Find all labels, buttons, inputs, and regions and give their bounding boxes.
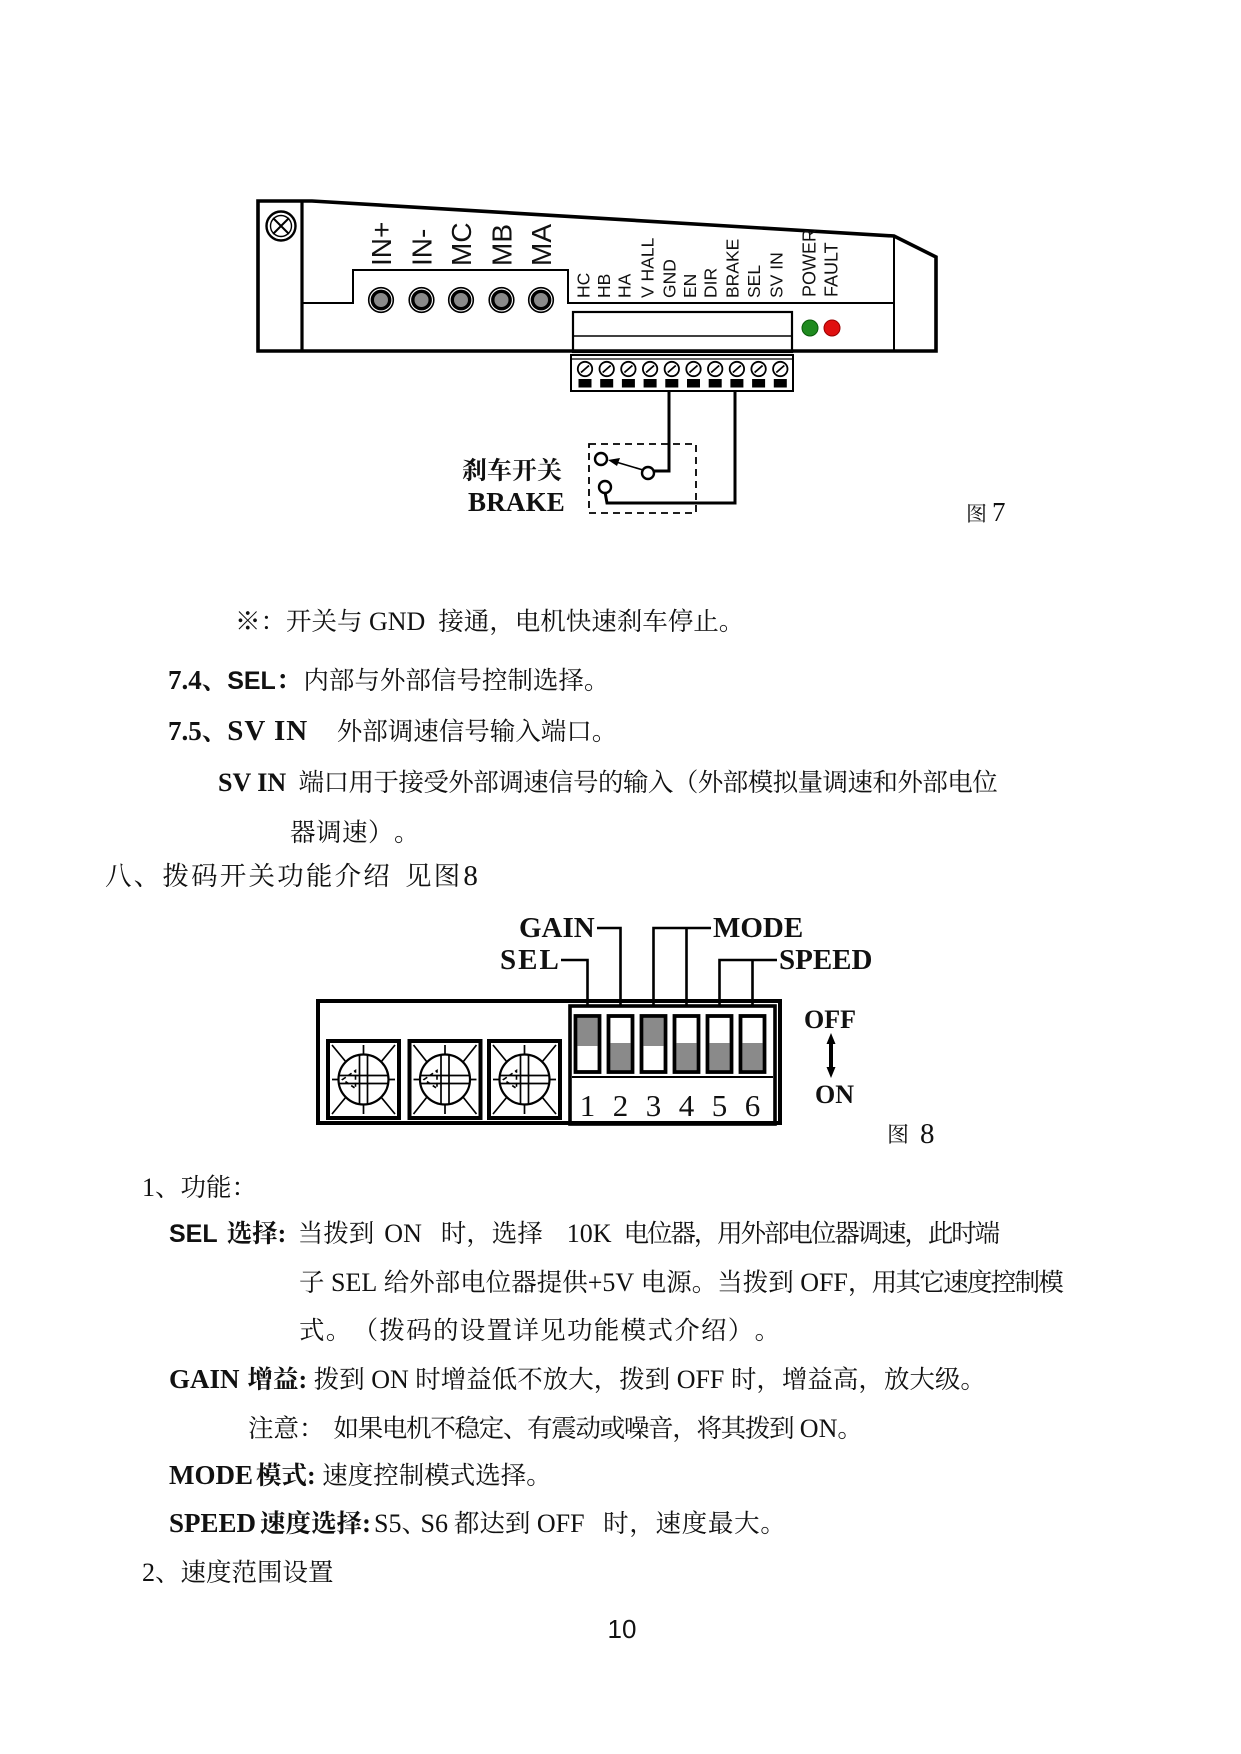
- svg-text:SPEED: SPEED: [169, 1508, 256, 1538]
- svg-text:ON: ON: [365, 1365, 416, 1394]
- svg-text:SV IN: SV IN: [218, 768, 286, 797]
- svg-text:DIR: DIR: [700, 268, 720, 298]
- svg-text:POWER: POWER: [800, 229, 820, 297]
- svg-text:SEL: SEL: [169, 1220, 218, 1248]
- svg-text:4: 4: [679, 1088, 695, 1123]
- svg-text:OFF: OFF: [804, 1005, 856, 1034]
- svg-text:BRAKE: BRAKE: [468, 487, 565, 517]
- svg-text:SEL: SEL: [325, 1268, 383, 1297]
- svg-text:S5: S5: [374, 1509, 401, 1538]
- svg-text:MB: MB: [487, 224, 518, 266]
- svg-text:6: 6: [745, 1088, 761, 1123]
- svg-text:7.4: 7.4: [168, 665, 202, 695]
- svg-text::: :: [307, 1461, 322, 1490]
- svg-text:BRAKE: BRAKE: [722, 239, 742, 298]
- svg-text:HC: HC: [573, 273, 593, 298]
- svg-text:MODE: MODE: [169, 1460, 253, 1490]
- svg-text::: :: [362, 1508, 371, 1538]
- svg-text:MA: MA: [526, 224, 557, 266]
- svg-text:3: 3: [646, 1088, 662, 1123]
- svg-text:IN+: IN+: [366, 222, 397, 266]
- svg-text:SPEED: SPEED: [779, 944, 872, 976]
- svg-text:MODE: MODE: [713, 912, 803, 944]
- svg-text:SEL: SEL: [744, 265, 764, 298]
- svg-text:2: 2: [142, 1558, 155, 1587]
- svg-text:SV IN: SV IN: [227, 715, 308, 747]
- svg-text:7.5: 7.5: [168, 716, 202, 746]
- svg-text:OFF: OFF: [794, 1268, 848, 1297]
- svg-text:10: 10: [608, 1614, 637, 1644]
- svg-text:2: 2: [613, 1088, 629, 1123]
- svg-text:IN-: IN-: [407, 229, 438, 266]
- svg-text:OFF: OFF: [530, 1509, 591, 1538]
- svg-text::: :: [278, 1219, 293, 1248]
- svg-text:HA: HA: [614, 273, 634, 298]
- svg-text:GAIN: GAIN: [519, 912, 595, 944]
- svg-text:5: 5: [712, 1088, 728, 1123]
- svg-text:S6: S6: [421, 1509, 448, 1538]
- svg-text:1: 1: [142, 1173, 155, 1202]
- svg-text:EN: EN: [680, 274, 700, 298]
- svg-text:V HALL: V HALL: [637, 237, 657, 298]
- svg-text:FAULT: FAULT: [822, 242, 842, 297]
- svg-text:HB: HB: [594, 274, 614, 298]
- svg-text:GND: GND: [659, 259, 679, 298]
- svg-text:ON: ON: [384, 1219, 422, 1248]
- svg-text:7: 7: [992, 497, 1006, 527]
- svg-text:ON: ON: [793, 1414, 837, 1443]
- svg-text:GAIN: GAIN: [169, 1364, 240, 1394]
- svg-text:+5V: +5V: [588, 1268, 640, 1297]
- svg-text::: :: [299, 1365, 314, 1394]
- svg-text:OFF: OFF: [670, 1365, 731, 1394]
- svg-text:10K: 10K: [567, 1219, 612, 1248]
- svg-text:GND: GND: [363, 607, 439, 636]
- svg-text:ON: ON: [815, 1080, 854, 1109]
- svg-text:SEL: SEL: [500, 944, 561, 976]
- svg-text:8: 8: [463, 860, 478, 892]
- svg-text:SV IN: SV IN: [766, 252, 786, 298]
- svg-text:MC: MC: [446, 222, 477, 266]
- svg-text:SEL: SEL: [227, 667, 276, 695]
- svg-text:8: 8: [920, 1118, 935, 1150]
- svg-text:1: 1: [580, 1088, 596, 1123]
